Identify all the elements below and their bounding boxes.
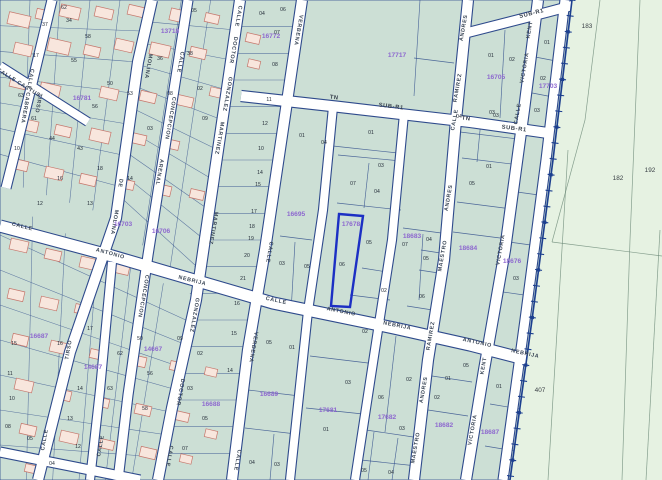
- boundary-marker: [524, 363, 527, 366]
- parcel-number: 07: [402, 242, 408, 248]
- parcel-number: 05: [266, 340, 272, 346]
- block-code: 17681: [319, 407, 338, 414]
- parcel-number: 05: [366, 240, 372, 246]
- boundary-marker: [543, 221, 546, 224]
- parcel-number: 14: [77, 386, 83, 392]
- block-code: 13718: [161, 28, 180, 35]
- parcel-number: 06: [378, 395, 384, 401]
- block-code: 17703: [539, 83, 558, 90]
- parcel-number: 01: [299, 133, 305, 139]
- parcel-number: 04: [388, 470, 394, 476]
- parcel-number: 50: [137, 336, 143, 342]
- street-label-tn-sub-r1: TN: [461, 115, 471, 122]
- parcel-number: 63: [18, 93, 24, 99]
- parcel-number: 63: [107, 386, 113, 392]
- block-code: 16703: [114, 221, 133, 228]
- parcel-number: 08: [272, 62, 278, 68]
- parcel-number: 11: [266, 97, 271, 103]
- parcel-number: 08: [5, 424, 11, 430]
- block-code: 18683: [403, 233, 422, 240]
- parcel-number: 15: [255, 182, 261, 188]
- parcel-number: 14: [227, 368, 233, 374]
- parcel-number: 04: [259, 11, 265, 17]
- parcel-number: 03: [279, 261, 285, 267]
- parcel-number: 53: [127, 91, 133, 97]
- block-code: 14687: [84, 364, 103, 371]
- boundary-marker: [511, 459, 514, 462]
- parcel-number: 15: [231, 331, 237, 337]
- parcel-number: 13: [87, 201, 93, 207]
- boundary-marker: [518, 411, 521, 414]
- rural-parcel-number: 192: [645, 167, 656, 174]
- parcel-number: 36: [157, 56, 163, 62]
- parcel-number: 18: [249, 224, 255, 230]
- block-code: 17682: [378, 414, 397, 421]
- boundary-marker: [567, 30, 570, 33]
- parcel-number: 06: [280, 7, 286, 13]
- block-code: 18687: [481, 429, 500, 436]
- parcel-number: 02: [362, 329, 368, 335]
- parcel-number: 10: [14, 146, 20, 152]
- boundary-marker: [537, 268, 540, 271]
- parcel-number: 08: [167, 91, 173, 97]
- parcel-number: 44: [49, 136, 55, 142]
- block-code: 18684: [459, 245, 478, 252]
- parcel-number: 04: [249, 460, 255, 466]
- parcel-number: 02: [509, 57, 515, 63]
- parcel-number: 07: [350, 181, 356, 187]
- rural-parcel-number: 407: [535, 387, 546, 394]
- parcel-number: 14: [127, 176, 133, 182]
- parcel-number: 03: [399, 426, 405, 432]
- block-code: 16781: [73, 95, 92, 102]
- parcel-number: 62: [117, 351, 123, 357]
- parcel-number: 05: [463, 363, 469, 369]
- boundary-marker: [531, 316, 534, 319]
- parcel-number: 16: [57, 341, 63, 347]
- parcel-number: 01: [289, 345, 295, 351]
- parcel-number: 09: [202, 116, 208, 122]
- parcel-number: 02: [197, 351, 203, 357]
- block-code: 16689: [260, 391, 279, 398]
- parcel-number: 01: [496, 384, 502, 390]
- parcel-number: 05: [191, 8, 197, 14]
- parcel-number: 04: [456, 114, 462, 120]
- parcel-number: 03: [513, 276, 519, 282]
- parcel-number: 04: [49, 461, 55, 467]
- parcel-number: 61: [31, 116, 37, 122]
- parcel-number: 17: [251, 209, 257, 215]
- boundary-marker: [555, 126, 558, 129]
- parcel-number: 02: [434, 395, 440, 401]
- parcel-number: 34: [66, 18, 72, 24]
- parcel-number: 58: [142, 406, 148, 412]
- rural-parcel-number: 182: [613, 175, 624, 182]
- parcel-number: 07: [182, 446, 188, 452]
- parcel-number: 02: [197, 86, 203, 92]
- parcel-number: 04: [426, 237, 432, 243]
- parcel-number: 01: [368, 130, 374, 136]
- parcel-number: 03: [378, 163, 384, 169]
- map-viewport: CALLE CACTUSTIRSOCALLE CABRERAMOLINADEMO…: [0, 0, 662, 480]
- parcel-number: 05: [27, 436, 33, 442]
- parcel-number: 03: [534, 108, 540, 114]
- block-code: 14667: [144, 346, 163, 353]
- parcel-number: 05: [469, 181, 475, 187]
- parcel-number: 12: [37, 201, 43, 207]
- parcel-number: 56: [147, 371, 153, 377]
- parcel-number: 04: [374, 189, 380, 195]
- parcel-number: 06: [419, 294, 425, 300]
- block-code: 16705: [487, 74, 506, 81]
- parcel-number: 01: [445, 376, 451, 382]
- parcel-number: 50: [107, 81, 113, 87]
- parcel-number: 05: [423, 256, 429, 262]
- parcel-number: 05: [202, 416, 208, 422]
- parcel-number: 16: [57, 176, 63, 182]
- parcel-number: 12: [262, 121, 268, 127]
- parcel-number: 20: [244, 253, 250, 259]
- parcel-number: 62: [61, 5, 67, 11]
- parcel-number: 04: [321, 140, 327, 146]
- parcel-number: 09: [177, 336, 183, 342]
- block-code: 17717: [388, 52, 407, 59]
- parcel-number: 11: [7, 371, 12, 377]
- parcel-number: 37: [42, 22, 48, 28]
- parcel-number: 01: [323, 427, 329, 433]
- parcel-number: 38: [187, 51, 193, 57]
- parcel-number: 01: [544, 40, 550, 46]
- parcel-number: 43: [77, 146, 83, 152]
- parcel-number: 05: [361, 468, 367, 474]
- parcel-number: 03: [187, 386, 193, 392]
- parcel-number: 21: [240, 276, 246, 282]
- block-code: 18682: [435, 422, 454, 429]
- block-code: 17678: [342, 221, 361, 228]
- boundary-marker: [549, 173, 552, 176]
- parcel-number: 03: [147, 126, 153, 132]
- parcel-number: 10: [258, 146, 264, 152]
- parcel-number: 15: [11, 341, 17, 347]
- parcel-number: 19: [248, 236, 254, 242]
- parcel-number: 17: [33, 53, 39, 59]
- parcel-number: 14: [257, 170, 263, 176]
- parcel-number: 02: [381, 288, 387, 294]
- parcel-number: 13: [67, 416, 73, 422]
- parcel-number: 03: [489, 110, 495, 116]
- rural-parcel-number: 183: [582, 23, 593, 30]
- block-code: 16687: [30, 333, 49, 340]
- parcel-number: 55: [71, 58, 77, 64]
- parcel-number: 58: [85, 34, 91, 40]
- block-code: 16706: [152, 228, 171, 235]
- parcel-number: 02: [406, 377, 412, 383]
- parcel-number: 12: [75, 444, 81, 450]
- street-label-tn-sub-r1: TN: [329, 94, 339, 101]
- block-code: 16695: [287, 211, 306, 218]
- cadastral-map-canvas[interactable]: CALLE CACTUSTIRSOCALLE CABRERAMOLINADEMO…: [0, 0, 662, 480]
- boundary-marker: [561, 78, 564, 81]
- parcel-number: 07: [274, 30, 280, 36]
- parcel-number: 02: [540, 76, 546, 82]
- parcel-number: 10: [9, 396, 15, 402]
- parcel-number: 05: [304, 264, 310, 270]
- parcel-number: 16: [234, 301, 240, 307]
- block-code: 16688: [202, 401, 221, 408]
- parcel-number: 03: [345, 380, 351, 386]
- parcel-number: 56: [92, 104, 98, 110]
- parcel-number: 17: [87, 326, 93, 332]
- highlighted-parcel-number: 06: [339, 262, 345, 268]
- parcel-number: 18: [97, 166, 103, 172]
- parcel-number: 01: [488, 53, 494, 59]
- block-code: 18676: [503, 258, 522, 265]
- parcel-number: 03: [274, 462, 280, 468]
- parcel-number: 01: [486, 164, 492, 170]
